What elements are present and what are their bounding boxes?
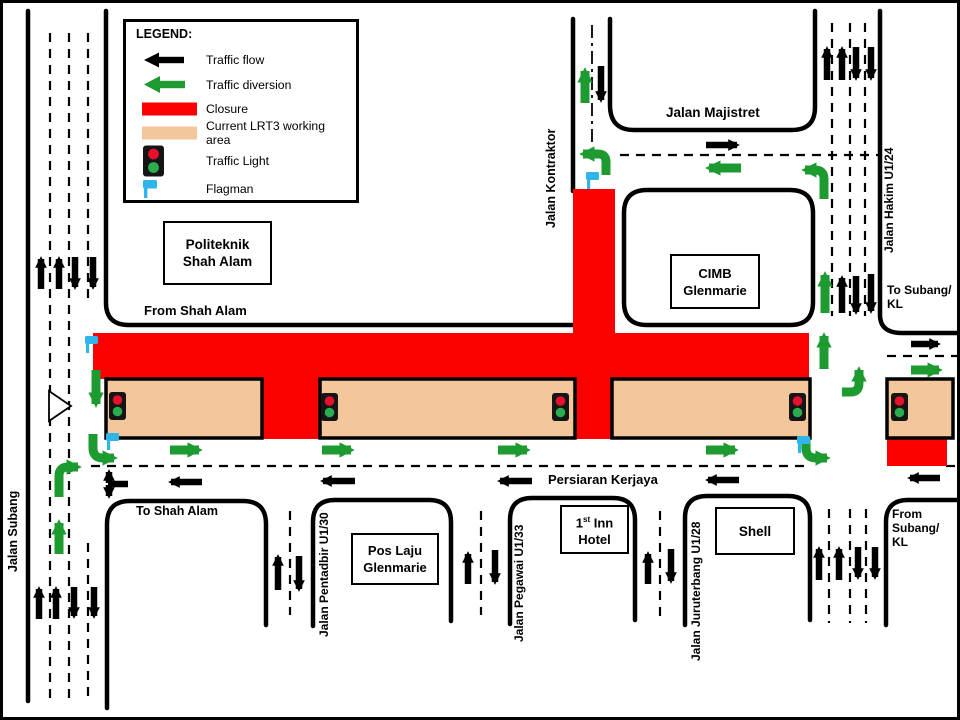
- traffic-light-green-lamp: [793, 408, 803, 418]
- flagman-icon: [106, 433, 119, 441]
- working-area-bar-icon: [136, 126, 206, 140]
- traffic-light-icon: [136, 145, 206, 177]
- jalan-pentadbir-label: Jalan Pentadbir U1/30: [318, 506, 332, 644]
- legend-item-label: Current LRT3 working area: [206, 119, 348, 147]
- closure-area: [575, 379, 612, 439]
- jalan-juruterbang-label: Jalan Juruterbang U1/28: [690, 515, 704, 667]
- traffic-light-red-lamp: [556, 396, 566, 406]
- cimb-glenmarie-box: CIMB Glenmarie: [670, 254, 760, 309]
- traffic-light-red-lamp: [793, 396, 803, 406]
- legend-item: Current LRT3 working area: [136, 121, 348, 145]
- flagman-icon: [586, 172, 599, 180]
- jalan-pegawai-label: Jalan Pegawai U1/33: [513, 518, 527, 648]
- shell-box: Shell: [715, 507, 795, 555]
- pos-laju-glenmarie-box: Pos Laju Glenmarie: [351, 533, 439, 585]
- legend-item: Closure: [136, 97, 348, 121]
- shell-label: Shell: [739, 523, 771, 540]
- jalan-kontraktor-label: Jalan Kontraktor: [544, 119, 558, 237]
- traffic-diversion-arrow-icon: [136, 75, 206, 94]
- traffic-light-red-lamp: [113, 395, 123, 405]
- closure-area: [573, 189, 615, 335]
- legend-item-label: Traffic diversion: [206, 78, 291, 92]
- yield-triangle-icon: [49, 391, 71, 421]
- from-subang-kl-label: From Subang/ KL: [892, 508, 939, 549]
- jalan-hakim-label: Jalan Hakim U1/24: [883, 143, 897, 257]
- legend-item-label: Traffic flow: [206, 53, 264, 67]
- inn-line1: 1st Inn: [576, 511, 614, 531]
- working-area: [320, 379, 575, 438]
- working-area: [106, 379, 262, 438]
- to-shah-alam-label: To Shah Alam: [136, 504, 218, 518]
- flagman-pole: [587, 180, 590, 189]
- flagman-icon: [797, 436, 810, 444]
- politeknik-shah-alam-box: Politeknik Shah Alam: [163, 221, 272, 285]
- traffic-light-red-lamp: [325, 396, 335, 406]
- traffic-light-green-lamp: [556, 408, 566, 418]
- first-inn-hotel-box: 1st Inn Hotel: [560, 505, 629, 554]
- flagman-pole: [107, 441, 110, 450]
- legend-item-label: Closure: [206, 102, 248, 116]
- traffic-light-red-lamp: [895, 396, 905, 406]
- legend-item: Traffic diversion: [136, 72, 348, 97]
- traffic-light-green-lamp: [895, 408, 905, 418]
- politeknik-line1: Politeknik: [186, 236, 250, 253]
- jalan-majistret-label: Jalan Majistret: [666, 105, 760, 121]
- diversion-turn-arrow: [842, 370, 859, 392]
- flagman-flag-icon: [136, 179, 206, 199]
- pos-laju-line2: Glenmarie: [363, 559, 427, 576]
- diversion-turn-arrow: [583, 154, 606, 175]
- pos-laju-line1: Pos Laju: [368, 542, 422, 559]
- traffic-diversion-map: LEGEND: Traffic flowTraffic diversionClo…: [0, 0, 960, 720]
- cimb-line2: Glenmarie: [683, 282, 747, 299]
- closure-area: [93, 333, 809, 379]
- working-area: [612, 379, 810, 438]
- traffic-light-green-lamp: [113, 407, 123, 417]
- closure-area: [887, 439, 947, 466]
- legend-item-label: Flagman: [206, 182, 253, 196]
- closure-area: [262, 379, 320, 439]
- inn-line2: Hotel: [578, 531, 611, 548]
- road-outline: [107, 501, 266, 708]
- legend-title: LEGEND:: [136, 27, 348, 47]
- flagman-pole: [86, 344, 89, 353]
- closure-bar-icon: [136, 102, 206, 116]
- legend-item: Traffic flow: [136, 47, 348, 72]
- persiaran-kerjaya-label: Persiaran Kerjaya: [548, 473, 658, 488]
- legend-item-label: Traffic Light: [206, 154, 269, 168]
- traffic-flow-arrow-icon: [136, 51, 206, 69]
- traffic-light-green-lamp: [325, 408, 335, 418]
- from-shah-alam-label: From Shah Alam: [144, 304, 247, 319]
- legend-rows: Traffic flowTraffic diversionClosureCurr…: [136, 47, 348, 200]
- legend-item: Traffic Light: [136, 145, 348, 177]
- legend-item: Flagman: [136, 177, 348, 200]
- flagman-icon: [85, 336, 98, 344]
- to-subang-kl-label: To Subang/ KL: [887, 284, 951, 312]
- legend-panel: LEGEND: Traffic flowTraffic diversionClo…: [123, 19, 359, 203]
- jalan-subang-label: Jalan Subang: [6, 486, 20, 576]
- flagman-pole: [798, 444, 801, 453]
- politeknik-line2: Shah Alam: [183, 253, 252, 270]
- cimb-line1: CIMB: [698, 265, 731, 282]
